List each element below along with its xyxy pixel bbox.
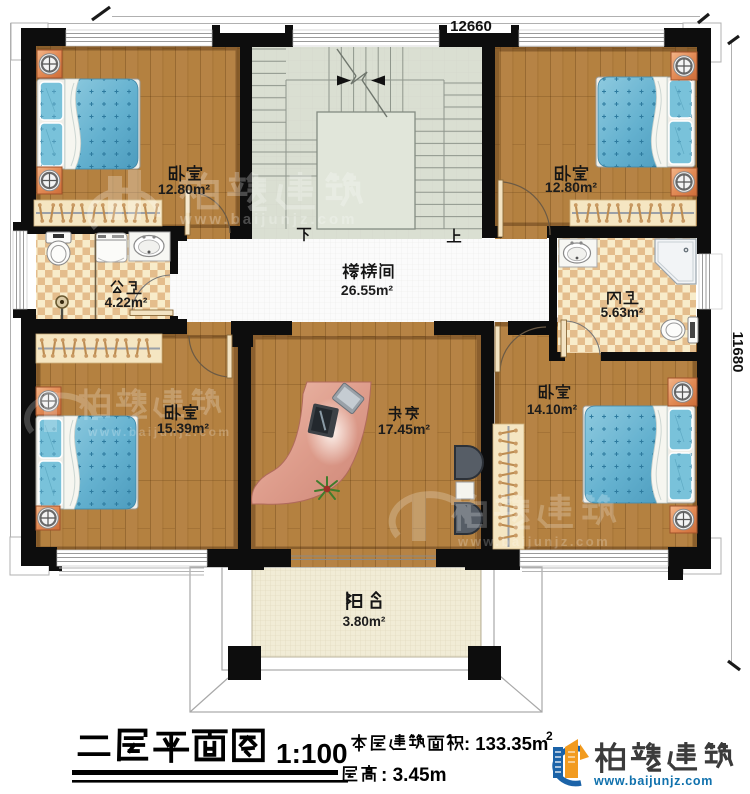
svg-text:17.45m²: 17.45m² (378, 421, 430, 437)
svg-text:12.80m²: 12.80m² (158, 181, 210, 197)
svg-text:2: 2 (546, 729, 553, 743)
svg-text:www.baijunjz.com: www.baijunjz.com (593, 774, 713, 788)
svg-text:: 3.45m: : 3.45m (381, 765, 446, 786)
svg-text:12.80m²: 12.80m² (545, 179, 597, 195)
svg-text:26.55m²: 26.55m² (341, 282, 393, 298)
svg-text:11680: 11680 (729, 332, 746, 373)
svg-text:5.63m²: 5.63m² (601, 305, 644, 320)
svg-text:www.baijunjz.com: www.baijunjz.com (457, 534, 610, 549)
svg-text:12660: 12660 (450, 18, 492, 35)
svg-text:4.22m²: 4.22m² (105, 295, 148, 310)
svg-text:1:100: 1:100 (276, 738, 348, 769)
svg-text:3.80m²: 3.80m² (343, 614, 386, 629)
svg-text:www.baijunjz.com: www.baijunjz.com (179, 211, 357, 228)
svg-text:: 133.35m: : 133.35m (464, 733, 548, 754)
svg-text:14.10m²: 14.10m² (527, 402, 578, 417)
svg-text:15.39m²: 15.39m² (157, 420, 209, 436)
